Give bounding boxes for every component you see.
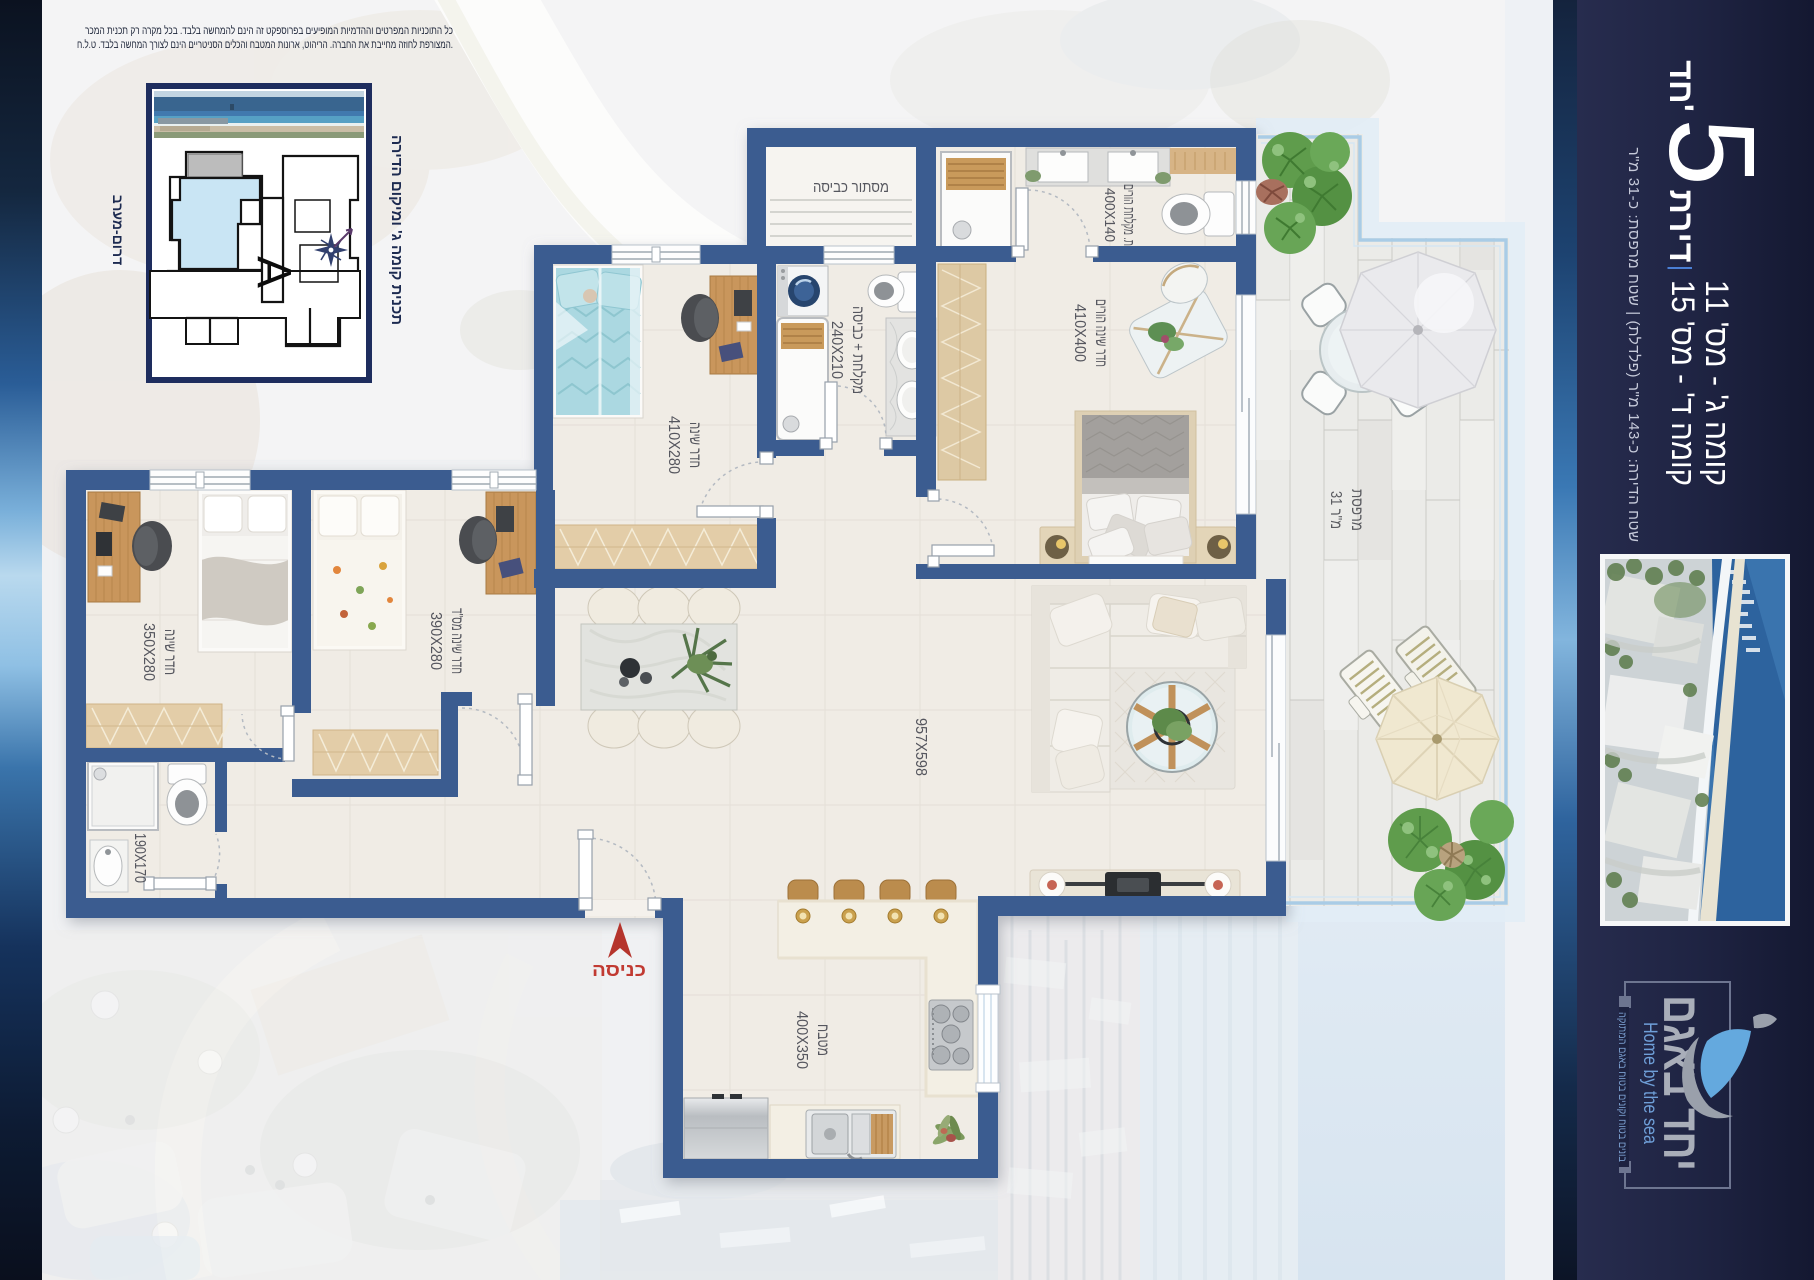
svg-text:חד': חד' bbox=[1662, 60, 1700, 112]
svg-text:מטבח: מטבח bbox=[814, 1024, 831, 1056]
svg-text:חדר שינה: חדר שינה bbox=[686, 422, 703, 468]
svg-text:Home by the sea: Home by the sea bbox=[1639, 1022, 1660, 1144]
svg-text:שטח הדירה: כ-143 מ"ר (פלדלת) |: שטח הדירה: כ-143 מ"ר (פלדלת) | שטח מרפסת… bbox=[1625, 148, 1642, 543]
svg-text:410X400: 410X400 bbox=[1071, 304, 1088, 362]
svg-text:|: | bbox=[1667, 265, 1697, 272]
svg-text:כניסה: כניסה bbox=[592, 960, 646, 980]
svg-text:350X280: 350X280 bbox=[140, 623, 157, 681]
svg-text:5: 5 bbox=[1644, 118, 1780, 186]
svg-text:190X170: 190X170 bbox=[131, 833, 148, 883]
svg-text:A: A bbox=[247, 256, 300, 288]
svg-text:יחד באגם: יחד באגם bbox=[1653, 995, 1709, 1171]
svg-text:דירת: דירת bbox=[1662, 189, 1700, 262]
svg-text:דרום-מערב: דרום-מערב bbox=[110, 195, 126, 265]
svg-text:בונים בטוח וקונים בטוח באגם המ: בונים בטוח וקונים בטוח באגם המתוקה bbox=[1616, 1012, 1628, 1162]
svg-text:קומה ד' - מס' 15: קומה ד' - מס' 15 bbox=[1665, 280, 1701, 486]
svg-text:400X350: 400X350 bbox=[793, 1011, 810, 1069]
svg-text:410X280: 410X280 bbox=[665, 416, 682, 474]
svg-text:חדר שינה: חדר שינה bbox=[161, 629, 178, 675]
svg-text:מקלחת + כביסה: מקלחת + כביסה bbox=[849, 306, 867, 394]
svg-text:957X598: 957X598 bbox=[912, 718, 929, 776]
svg-text:קומה ג' - מס' 11: קומה ג' - מס' 11 bbox=[1699, 280, 1735, 486]
svg-text:תכנית קומה ג' ומיקום הדירה: תכנית קומה ג' ומיקום הדירה bbox=[388, 135, 405, 325]
svg-text:400X140: 400X140 bbox=[1101, 188, 1118, 242]
svg-text:חדר שינה הורים: חדר שינה הורים bbox=[1092, 299, 1109, 367]
svg-text:חדר שינה מס"ד: חדר שינה מס"ד bbox=[448, 608, 465, 674]
svg-text:240X210: 240X210 bbox=[828, 321, 845, 379]
svg-text:כל התוכניות המפרטים וההדמיות ה: כל התוכניות המפרטים וההדמיות המופיעים בפ… bbox=[85, 24, 453, 37]
svg-text:ת. מקלחת הורים: ת. מקלחת הורים bbox=[1120, 184, 1137, 246]
svg-text:390X280: 390X280 bbox=[427, 612, 444, 670]
svg-text:מרפסת: מרפסת bbox=[1348, 489, 1365, 531]
svg-text:מסתור כביסה: מסתור כביסה bbox=[813, 179, 889, 196]
svg-text:המצורפת לחוזה מחייבת את החברה.: המצורפת לחוזה מחייבת את החברה. הריהוט, א… bbox=[77, 38, 453, 51]
svg-text:31 מ"ר: 31 מ"ר bbox=[1327, 491, 1344, 529]
